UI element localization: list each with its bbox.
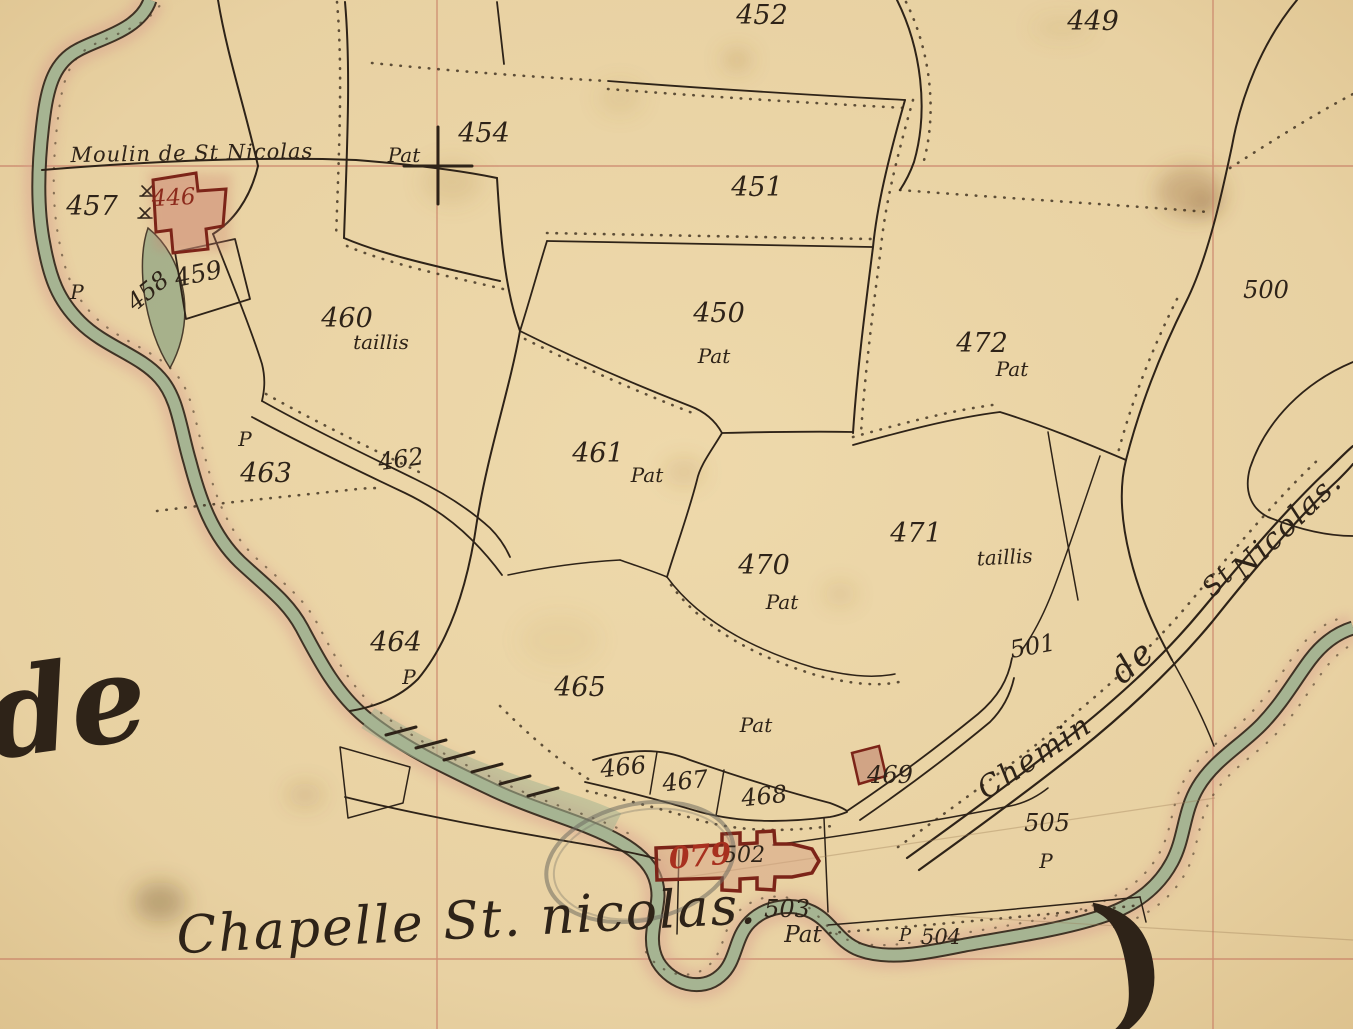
parcel-500-label: 500 — [1243, 276, 1289, 304]
landuse-471: taillis — [976, 544, 1033, 571]
landuse-454: Pat — [387, 143, 421, 167]
parcel-457-label: 457 — [65, 191, 118, 222]
landuse-504-p: P — [898, 925, 912, 946]
landuse-463: P — [237, 427, 252, 451]
parcel-454-label: 454 — [457, 118, 510, 149]
red-annotation-079: 079 — [667, 836, 733, 876]
landuse-460: taillis — [353, 330, 409, 354]
landuse-472: Pat — [995, 357, 1029, 381]
parcel-471-label: 471 — [889, 518, 942, 549]
parcel-450-label: 450 — [692, 298, 745, 329]
landuse-505: P — [1038, 849, 1053, 873]
parcel-463-label: 463 — [239, 458, 292, 489]
parcel-464-label: 464 — [369, 627, 422, 658]
map-canvas: 452449454Pat451457P446459458500460tailli… — [0, 0, 1353, 1029]
parcel-469-label: 469 — [866, 761, 913, 789]
cadastral-map-scan: 452449454Pat451457P446459458500460tailli… — [0, 0, 1353, 1029]
landuse-461: Pat — [630, 463, 664, 487]
parcel-465-label: 465 — [553, 672, 606, 703]
parcel-446-label: 446 — [150, 184, 196, 212]
parcel-461-label: 461 — [571, 438, 624, 469]
margin-script-de: de — [0, 626, 155, 788]
landuse-470: Pat — [765, 590, 799, 614]
landuse-465: Pat — [739, 713, 773, 737]
landuse-457: P — [69, 280, 84, 304]
parcel-503-label: 503 — [764, 895, 810, 923]
parcel-472-label: 472 — [955, 328, 1008, 359]
parcel-451-label: 451 — [730, 172, 783, 203]
landuse-503: Pat — [783, 922, 822, 948]
parcel-505-label: 505 — [1024, 809, 1070, 837]
moulin-name: Moulin de St Nicolas — [69, 139, 313, 167]
landuse-464: P — [401, 665, 416, 689]
parcel-449-label: 449 — [1066, 6, 1119, 37]
parcel-467-label: 467 — [660, 765, 710, 798]
parcel-466-label: 466 — [598, 751, 647, 784]
parcel-470-label: 470 — [737, 550, 790, 581]
landuse-450: Pat — [697, 344, 731, 368]
parcel-452-label: 452 — [735, 0, 788, 31]
parcel-468-label: 468 — [739, 780, 788, 813]
parcel-504-label: 504 — [921, 925, 961, 949]
